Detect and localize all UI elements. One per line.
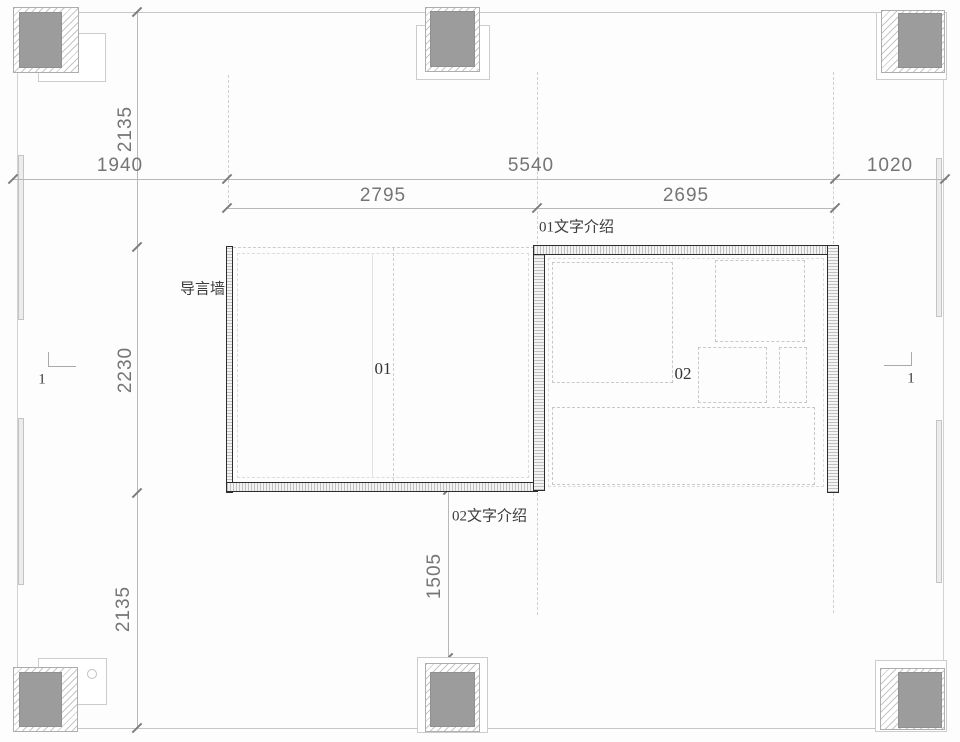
grid-line-room2-axis-lower <box>833 493 834 613</box>
room2-label: 02 <box>675 364 692 384</box>
dim-2230: 2230 <box>115 347 137 393</box>
room2-right-wall <box>827 245 839 493</box>
room2-exhibit-rect-1 <box>552 262 673 383</box>
room2-exhibit-rect-2 <box>715 260 805 342</box>
room2-exhibit-rect-5 <box>552 407 815 485</box>
window-segment-left-lower <box>18 418 24 585</box>
dim-5540: 5540 <box>508 155 554 177</box>
outer-wall-left-line <box>17 12 18 728</box>
room1-label: 01 <box>375 359 392 379</box>
section-marker-left-line <box>48 366 76 367</box>
room1-divider-faint-line <box>372 253 373 478</box>
section-marker-left-label: 1 <box>38 372 46 389</box>
dim-2795: 2795 <box>360 185 406 207</box>
column-top-middle-core <box>430 11 475 67</box>
room-divider-wall <box>533 245 545 491</box>
room2-exhibit-rect-4 <box>779 347 807 403</box>
intro-wall-label: 导言墙 <box>180 278 225 299</box>
section-marker-right-label: 1 <box>907 371 915 388</box>
section-marker-right-tick <box>911 352 912 365</box>
dimension-line-row1 <box>13 179 947 180</box>
grid-line-room2-axis-upper <box>833 72 834 244</box>
dim-1020: 1020 <box>867 155 913 177</box>
dimension-line-row2 <box>227 208 835 209</box>
room1-bottom-wall <box>226 482 538 492</box>
column-bottom-left-fixture-circle <box>87 669 97 679</box>
dimension-line-1505 <box>448 490 449 658</box>
grid-line-divider-axis-lower <box>537 493 538 615</box>
section-marker-left-tick <box>48 352 49 366</box>
column-bottom-middle-core <box>430 672 475 727</box>
dim-1940: 1940 <box>97 155 143 177</box>
dim-1505: 1505 <box>424 553 446 599</box>
room1-divider-dashed-line <box>393 248 394 481</box>
section-marker-right-line <box>884 365 912 366</box>
room2-top-wall <box>533 245 839 255</box>
window-segment-right-lower <box>936 420 942 583</box>
outer-wall-top-line <box>13 12 947 13</box>
column-bottom-left-core <box>19 672 62 727</box>
dimension-line-left-vertical <box>137 12 138 728</box>
floor-plan-canvas: 2135 1940 5540 1020 2795 2695 2230 1505 … <box>0 0 960 742</box>
room1-intro-wall <box>226 246 233 493</box>
grid-line-room1-axis <box>228 75 229 208</box>
dim-2695: 2695 <box>663 185 709 207</box>
dim-2135-top: 2135 <box>115 106 137 152</box>
room2-exhibit-rect-3 <box>698 347 767 403</box>
outer-wall-right-line <box>943 12 944 728</box>
column-top-right-core <box>898 13 942 68</box>
column-bottom-right-core <box>898 672 942 728</box>
zone1-caption: 01文字介绍 <box>539 216 614 237</box>
column-top-left-core <box>19 12 62 68</box>
dim-2135-bottom: 2135 <box>113 586 135 632</box>
zone2-caption: 02文字介绍 <box>452 505 527 526</box>
room1-top-boundary-dashed <box>233 247 534 248</box>
